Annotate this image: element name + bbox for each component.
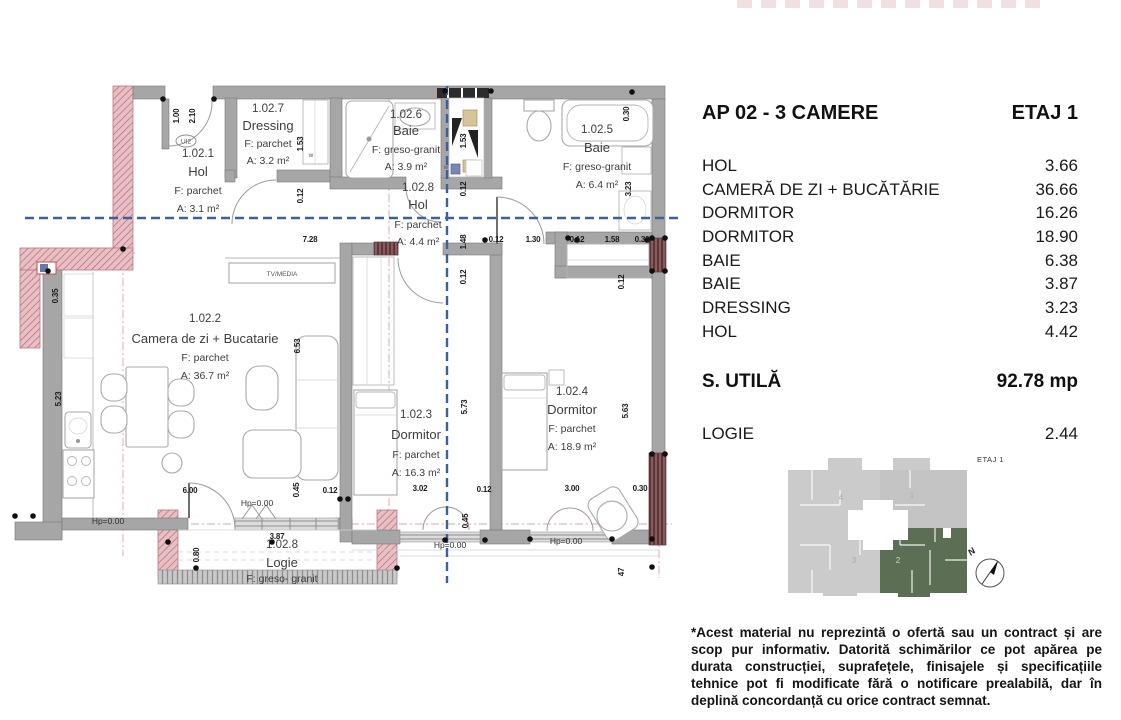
dressing-wardrobe: w [303,100,328,164]
svg-text:Dormitor: Dormitor [391,427,442,442]
tv-cabinet: TV/MEDIA [225,258,340,283]
hp-label: Hp=0.00 [550,536,583,546]
sofa [243,336,338,480]
keyplan-unit-1: 1 [910,491,915,500]
dim: 0.30 [635,235,651,244]
room-name: BAIE [702,274,741,298]
svg-text:F: greso-granit: F: greso-granit [372,144,440,156]
room-area: 3.87 [1045,274,1078,298]
room-area: 3.23 [1045,298,1078,322]
washer-marker: w [443,164,449,171]
hp-label: Hp=0.00 [434,540,467,550]
dim: 1.53 [459,133,468,149]
dim: 7.28 [303,235,319,244]
room-label-bed2: 1.02.4 Dormitor F: parchet A: 18.9 m² [547,386,598,453]
room-name: HOL [702,156,737,180]
dim: 0.30 [622,106,631,122]
bed-icon [354,390,397,495]
keyplan-building: 4 1 3 2 [788,458,967,597]
room-name: DORMITOR [702,227,794,251]
table-row: HOL 4.42 [702,322,1078,346]
svg-text:F: parchet: F: parchet [548,423,595,435]
svg-text:A: 4.4 m²: A: 4.4 m² [397,236,440,248]
dim: 0.80 [192,547,201,563]
room-area: 4.42 [1045,322,1078,346]
svg-text:Logie: Logie [266,555,298,570]
svg-text:1.02.6: 1.02.6 [390,109,422,121]
chair-icon [597,501,627,531]
svg-text:Baie: Baie [584,140,610,155]
svg-text:A: 36.7 m²: A: 36.7 m² [181,370,230,382]
svg-text:1.02.2: 1.02.2 [189,313,221,325]
dim: 3.23 [624,181,633,197]
entry-door-label: UI2 [181,139,192,146]
svg-text:1.02.1: 1.02.1 [182,148,214,160]
keyplan-floor-label: ETAJ 1 [977,455,1004,464]
svg-text:A: 18.9 m²: A: 18.9 m² [548,441,597,453]
room-name: BAIE [702,251,741,275]
cropped-title-remnant [737,0,1040,8]
dim: 3.02 [413,484,429,493]
svg-text:F: parchet: F: parchet [244,138,291,150]
svg-text:F: parchet: F: parchet [392,449,439,461]
useful-area-row: S. UTILĂ 92.78 mp [702,371,1078,393]
room-area: 18.90 [1035,227,1078,251]
dim: 5.23 [54,391,63,407]
room-label-hol1: 1.02.1 Hol F: parchet A: 3.1 m² [174,148,221,215]
dim: 6.00 [183,486,199,495]
dim: 6.53 [293,338,302,354]
room-label-dressing: 1.02.7 Dressing F: parchet A: 3.2 m² [242,103,293,167]
svg-text:A: 3.2 m²: A: 3.2 m² [247,155,290,167]
logie-label: LOGIE [702,424,754,444]
dim: 1.53 [296,136,305,152]
useful-area-value: 92.78 mp [997,371,1078,393]
dim: 0.12 [617,274,626,290]
svg-text:Dressing: Dressing [242,118,293,133]
dim: 0.12 [323,486,339,495]
svg-text:F: greso- granit: F: greso- granit [246,573,317,585]
dining-table [101,367,194,473]
keyplan-unit-3: 3 [852,556,857,565]
room-name: HOL [702,322,737,346]
svg-text:A: 16.3 m²: A: 16.3 m² [392,467,441,479]
dim: 0.12 [477,485,493,494]
room-name: DRESSING [702,298,791,322]
room-name: DORMITOR [702,203,794,227]
svg-text:F: parchet: F: parchet [394,219,441,231]
disclaimer-text: *Acest material nu reprezintă o ofertă s… [691,624,1102,709]
table-row: CAMERĂ DE ZI + BUCĂTĂRIE 36.66 [702,180,1078,204]
table-row: BAIE 6.38 [702,251,1078,275]
dim: 1.48 [459,234,468,250]
room-area: 16.26 [1035,203,1078,227]
table-row: DORMITOR 16.26 [702,203,1078,227]
dim: 1.30 [526,235,542,244]
floorplan-drawing: TV/MEDIA w w [0,0,700,720]
room-label-hol8: 1.02.8 Hol F: parchet A: 4.4 m² [394,182,441,248]
table-row: DORMITOR 18.90 [702,227,1078,251]
svg-text:A: 3.9 m²: A: 3.9 m² [385,161,428,173]
apartment-title-row: AP 02 - 3 CAMERE ETAJ 1 [702,102,1078,125]
walls [15,86,665,545]
room-area: 6.38 [1045,251,1078,275]
entry-door-leaf [162,99,169,149]
svg-text:F: greso-granit: F: greso-granit [563,161,631,173]
hp-label: Hp=0.00 [92,516,125,526]
floorplan-sheet: TV/MEDIA w w [0,0,1121,720]
dim: 5.63 [621,403,630,419]
svg-text:F: parchet: F: parchet [174,185,221,197]
table-row: HOL 3.66 [702,156,1078,180]
dim: 0.12 [489,235,505,244]
apartment-title: AP 02 - 3 CAMERE [702,102,878,125]
bed-icon [502,373,547,470]
keyplan-unit-4: 4 [839,493,844,502]
svg-text:Baie: Baie [393,123,419,138]
table-row: DRESSING 3.23 [702,298,1078,322]
svg-text:1.02.3: 1.02.3 [400,409,432,421]
north-arrow-icon: N [966,545,1004,587]
svg-text:A: 3.1 m²: A: 3.1 m² [177,203,220,215]
tv-media-label: TV/MEDIA [267,271,298,278]
room-area-table: HOL 3.66 CAMERĂ DE ZI + BUCĂTĂRIE 36.66 … [702,156,1078,346]
svg-text:1.02.8: 1.02.8 [402,182,434,194]
svg-text:Hol: Hol [408,197,428,212]
room-area: 3.66 [1045,156,1078,180]
dim: 0.45 [461,513,470,529]
dim: 5.73 [460,399,469,415]
room-label-logie: 1.02.8 Logie F: greso- granit [246,539,317,585]
room-label-bed1: 1.02.3 Dormitor F: parchet A: 16.3 m² [391,409,442,479]
dim: 0.12 [459,181,468,197]
useful-area-label: S. UTILĂ [702,371,781,393]
dim: 2.10 [188,108,197,124]
room-area: 36.66 [1035,180,1078,204]
entry-door-tag: UI2 [176,135,196,147]
stove-icon [63,450,94,498]
svg-text:1.02.4: 1.02.4 [556,386,589,398]
toilet-icon [527,111,551,141]
hp-label: Hp=0.00 [241,498,274,508]
bed1-furniture [353,257,397,495]
dim: 0.12 [459,269,468,285]
dim: 3.00 [565,484,581,493]
floor-title: ETAJ 1 [1012,102,1078,125]
svg-text:Camera de zi + Bucatarie: Camera de zi + Bucatarie [131,331,278,346]
keyplan-unit-2: 2 [896,556,901,565]
svg-text:Hol: Hol [188,164,208,179]
svg-text:F: parchet: F: parchet [181,352,228,364]
dim: 1.58 [605,235,621,244]
table-row: BAIE 3.87 [702,274,1078,298]
dim: 0.30 [633,484,649,493]
dim: 0.12 [296,188,305,204]
dim: 0.45 [292,482,301,498]
wardrobe-marker: w [308,152,314,159]
dim: 0.12 [570,235,586,244]
svg-text:A: 6.4 m²: A: 6.4 m² [576,179,619,191]
north-label: N [966,545,978,557]
room-name: CAMERĂ DE ZI + BUCĂTĂRIE [702,180,940,204]
dim: 0.35 [51,288,60,304]
svg-text:Dormitor: Dormitor [547,402,598,417]
logie-value: 2.44 [1045,424,1078,444]
svg-text:1.02.7: 1.02.7 [252,103,284,115]
svg-text:1.02.5: 1.02.5 [581,124,613,136]
dim: 47 [617,567,626,576]
svg-text:1.02.8: 1.02.8 [266,539,298,551]
keyplan: 4 1 3 2 ETAJ 1 N [770,440,1020,610]
